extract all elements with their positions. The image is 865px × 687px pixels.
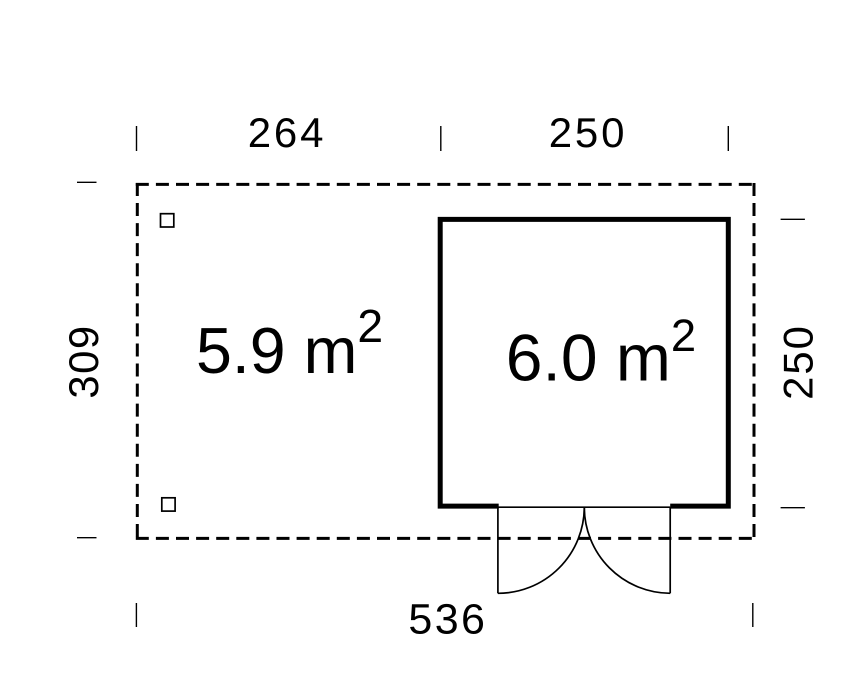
svg-text:309: 309 <box>60 324 107 398</box>
svg-text:6.0 m2: 6.0 m2 <box>506 310 696 394</box>
svg-text:536: 536 <box>408 595 487 643</box>
svg-text:250: 250 <box>774 324 821 400</box>
svg-text:264: 264 <box>248 109 326 156</box>
svg-text:250: 250 <box>549 109 627 156</box>
